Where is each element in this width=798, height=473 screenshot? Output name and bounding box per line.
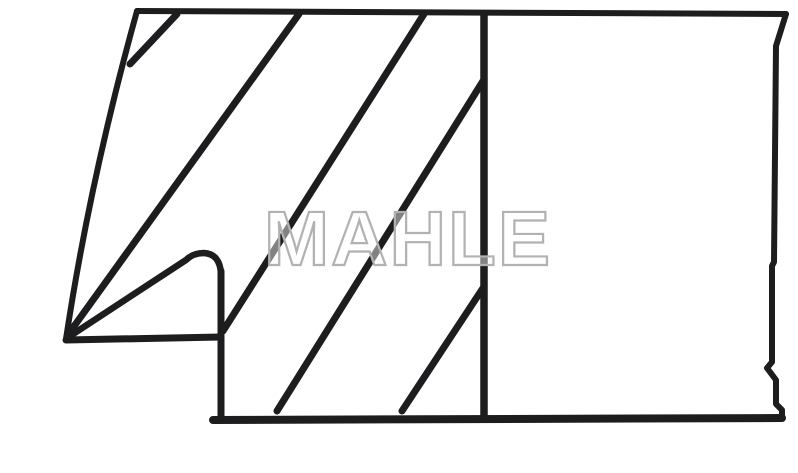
- piston-ring-cross-section-diagram: MAHLE: [0, 0, 798, 473]
- hatch-line-3: [223, 14, 424, 331]
- nose-hook: [67, 253, 221, 338]
- mahle-watermark: MAHLE: [264, 196, 552, 282]
- bottom-edge: [213, 418, 782, 420]
- step-horizontal: [66, 337, 221, 340]
- hatch-line-5: [402, 288, 483, 411]
- hatch-line-2: [67, 14, 299, 336]
- top-edge: [137, 11, 786, 14]
- product-image-canvas: MAHLE: [0, 0, 798, 473]
- right-edge: [767, 14, 786, 418]
